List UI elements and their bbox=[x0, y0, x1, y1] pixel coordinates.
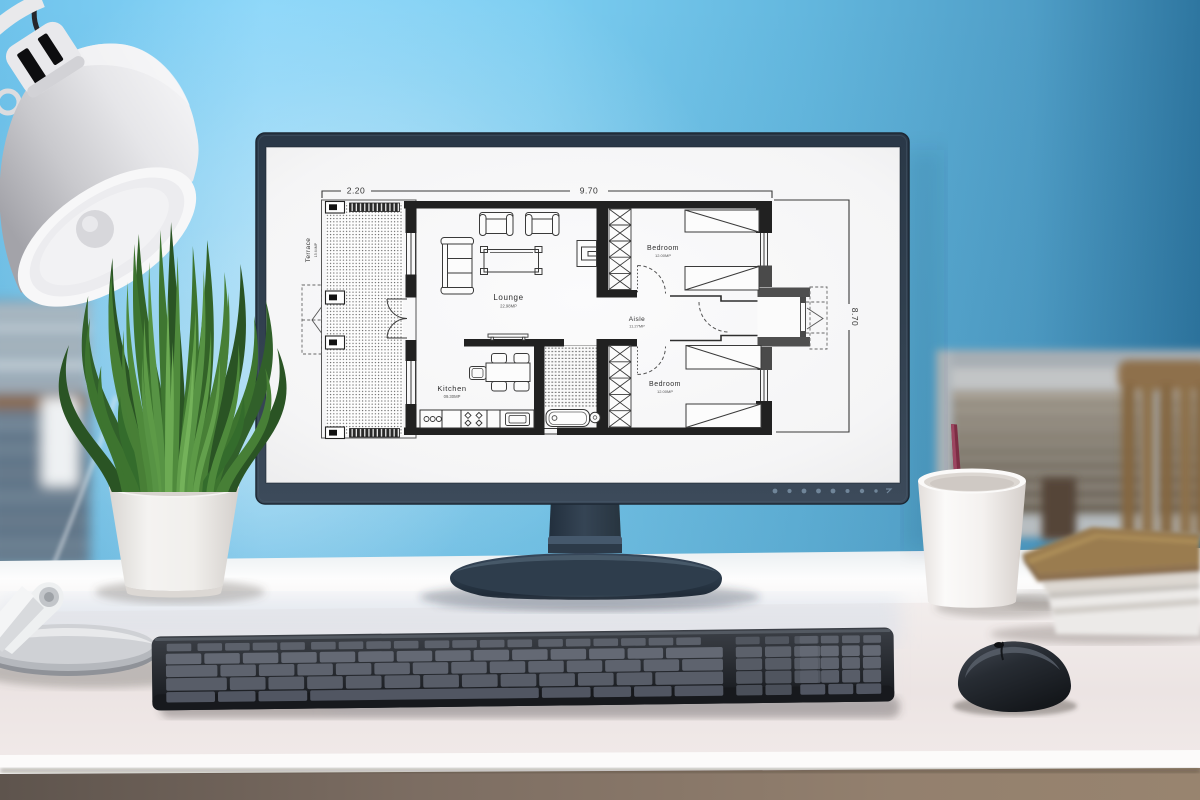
svg-text:15.64MP: 15.64MP bbox=[314, 242, 318, 257]
svg-text:Lounge: Lounge bbox=[493, 293, 523, 302]
svg-text:11.27MP: 11.27MP bbox=[629, 324, 645, 329]
svg-text:9.70: 9.70 bbox=[580, 186, 599, 196]
svg-text:Bedroom: Bedroom bbox=[649, 381, 681, 388]
svg-text:Terrace: Terrace bbox=[305, 238, 312, 262]
svg-text:12.00MP: 12.00MP bbox=[655, 253, 671, 258]
svg-text:22.98MP: 22.98MP bbox=[500, 304, 517, 309]
svg-text:12.00MP: 12.00MP bbox=[657, 389, 673, 394]
svg-text:09.30MP: 09.30MP bbox=[444, 394, 461, 399]
svg-text:8.70: 8.70 bbox=[850, 308, 860, 327]
svg-text:Bedroom: Bedroom bbox=[647, 245, 679, 252]
svg-text:2.20: 2.20 bbox=[347, 186, 366, 196]
svg-text:Aisle: Aisle bbox=[629, 316, 646, 323]
svg-text:Kitchen: Kitchen bbox=[437, 384, 466, 393]
